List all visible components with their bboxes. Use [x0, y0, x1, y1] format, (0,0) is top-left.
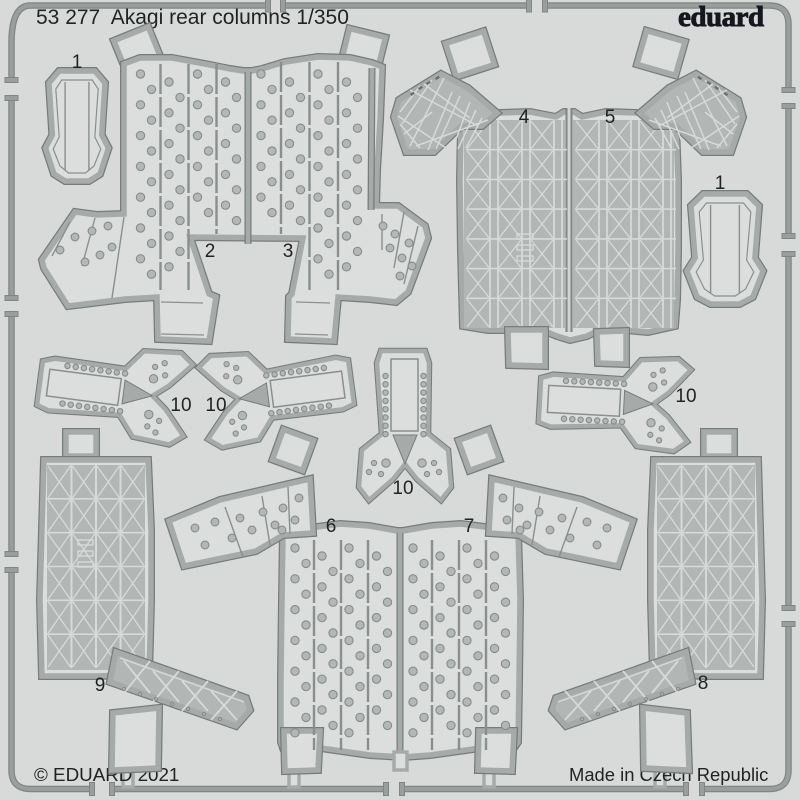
- svg-text:8: 8: [698, 673, 709, 694]
- svg-text:10: 10: [675, 386, 696, 407]
- svg-text:10: 10: [392, 478, 413, 499]
- svg-text:4: 4: [519, 107, 530, 128]
- svg-text:53 277 Akagi rear columns 1/3: 53 277 Akagi rear columns 1/350: [36, 6, 349, 29]
- svg-text:2: 2: [205, 241, 216, 262]
- svg-text:1: 1: [72, 52, 83, 73]
- svg-text:7: 7: [464, 516, 475, 537]
- svg-text:6: 6: [326, 516, 337, 537]
- svg-text:1: 1: [715, 173, 726, 194]
- svg-text:eduard: eduard: [678, 1, 764, 33]
- svg-text:10: 10: [205, 395, 226, 416]
- svg-text:3: 3: [283, 241, 294, 262]
- svg-text:10: 10: [170, 395, 191, 416]
- svg-text:5: 5: [605, 107, 616, 128]
- svg-text:9: 9: [95, 675, 106, 696]
